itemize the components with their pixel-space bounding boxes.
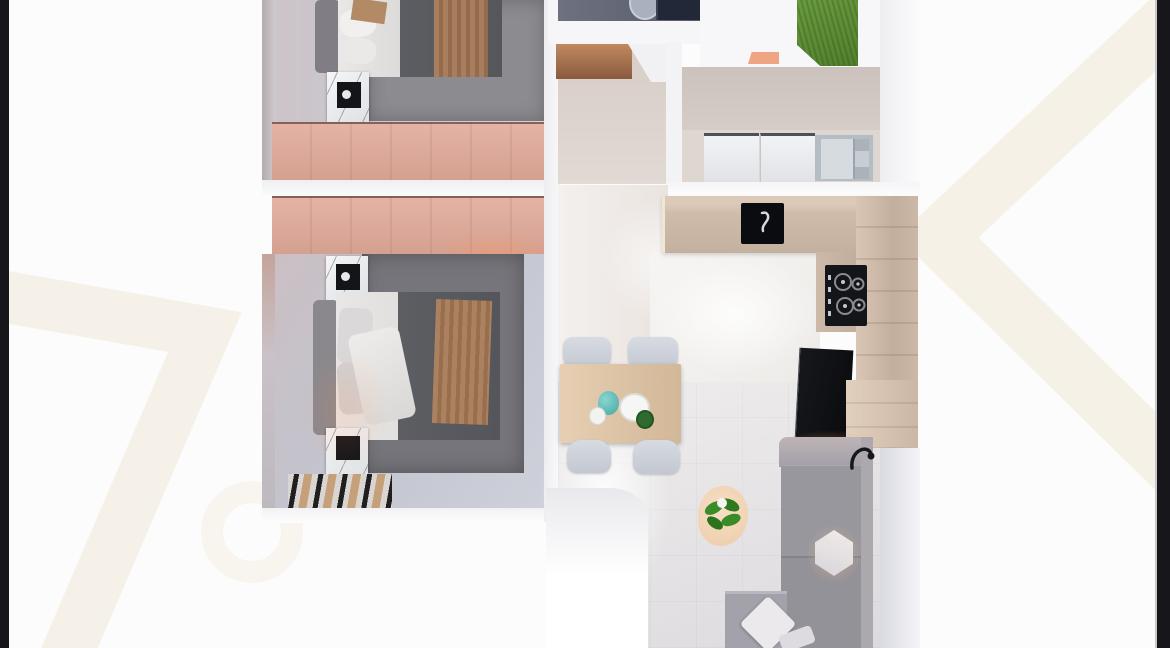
laundry-wall (682, 67, 882, 133)
warm-light (300, 350, 390, 470)
edge-bar-left (0, 0, 9, 648)
wall-divider (262, 180, 548, 196)
kitchen-sink (741, 203, 784, 244)
bedroom-bottom-wall (262, 508, 548, 523)
hallway-wood-wardrobe (556, 44, 632, 79)
dining-chair-bottom-right (633, 440, 680, 474)
watermark-chevron-left (0, 295, 205, 648)
salmon-bench (748, 52, 779, 64)
edge-bar-right (1155, 0, 1170, 648)
washer-right (760, 133, 815, 185)
dining-chair-bottom-left (567, 440, 611, 473)
outer-wall-right-top (880, 0, 920, 196)
outer-wall-right-bottom (880, 448, 920, 648)
white-cup (589, 407, 606, 425)
watermark-chevron-right (938, 5, 1170, 480)
faucet-icon (741, 203, 784, 244)
stove-burners-icon (825, 265, 867, 326)
hallway-right-wall (666, 42, 682, 184)
laundry-bottom-wall (666, 182, 920, 197)
potted-plant-icon (700, 492, 748, 542)
bedroom-bottom-brown-blanket (432, 299, 492, 425)
tv-screen (795, 348, 854, 443)
washer-left (704, 133, 759, 185)
green-bottle (636, 410, 654, 429)
striped-mat (288, 474, 392, 508)
bedroom-bottom-left-wall (262, 254, 275, 508)
bedroom-top-brown-blanket (434, 0, 488, 77)
shelf-cabinet-door (821, 139, 855, 179)
pillow (339, 37, 377, 65)
floorplan-render (0, 0, 1170, 648)
decor-dial (341, 272, 350, 281)
bedroom-top-headboard (315, 0, 340, 73)
shelf-cabinet-shelves (855, 139, 869, 179)
bedroom-top-wardrobe (272, 122, 546, 182)
lower-wall-column (546, 488, 648, 648)
decor-dial (342, 90, 351, 99)
floor-lamp-icon (846, 438, 876, 470)
gas-stove (825, 265, 867, 326)
